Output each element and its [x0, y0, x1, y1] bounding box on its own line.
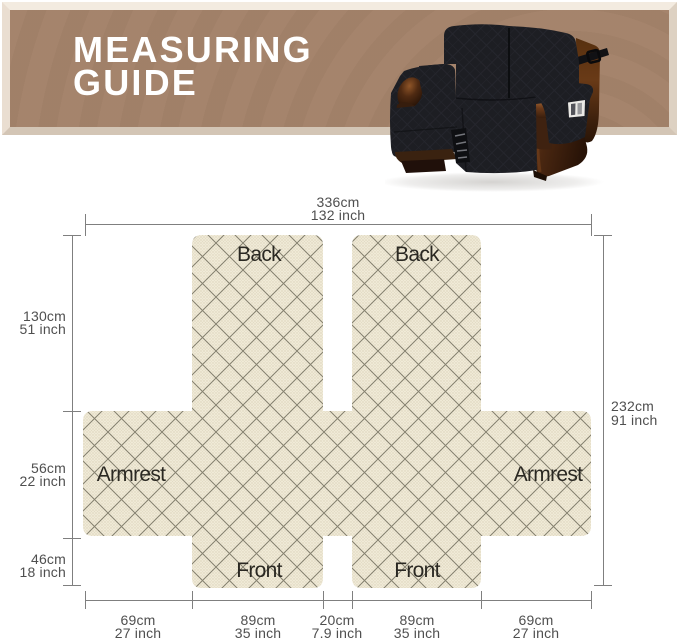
svg-text:22 inch: 22 inch: [19, 473, 66, 489]
svg-text:Armrest: Armrest: [514, 463, 583, 486]
svg-text:7.9 inch: 7.9 inch: [312, 625, 363, 640]
svg-text:27 inch: 27 inch: [115, 625, 162, 640]
svg-text:51 inch: 51 inch: [19, 321, 66, 337]
svg-text:Back: Back: [395, 243, 440, 266]
svg-text:91 inch: 91 inch: [611, 412, 658, 428]
svg-text:18 inch: 18 inch: [19, 564, 66, 580]
svg-text:Front: Front: [236, 559, 282, 582]
svg-text:35 inch: 35 inch: [394, 625, 441, 640]
svg-text:132 inch: 132 inch: [311, 207, 366, 223]
svg-text:35 inch: 35 inch: [235, 625, 282, 640]
svg-text:27 inch: 27 inch: [513, 625, 560, 640]
svg-text:Armrest: Armrest: [97, 463, 166, 486]
svg-text:Back: Back: [237, 243, 282, 266]
svg-text:Front: Front: [394, 559, 440, 582]
